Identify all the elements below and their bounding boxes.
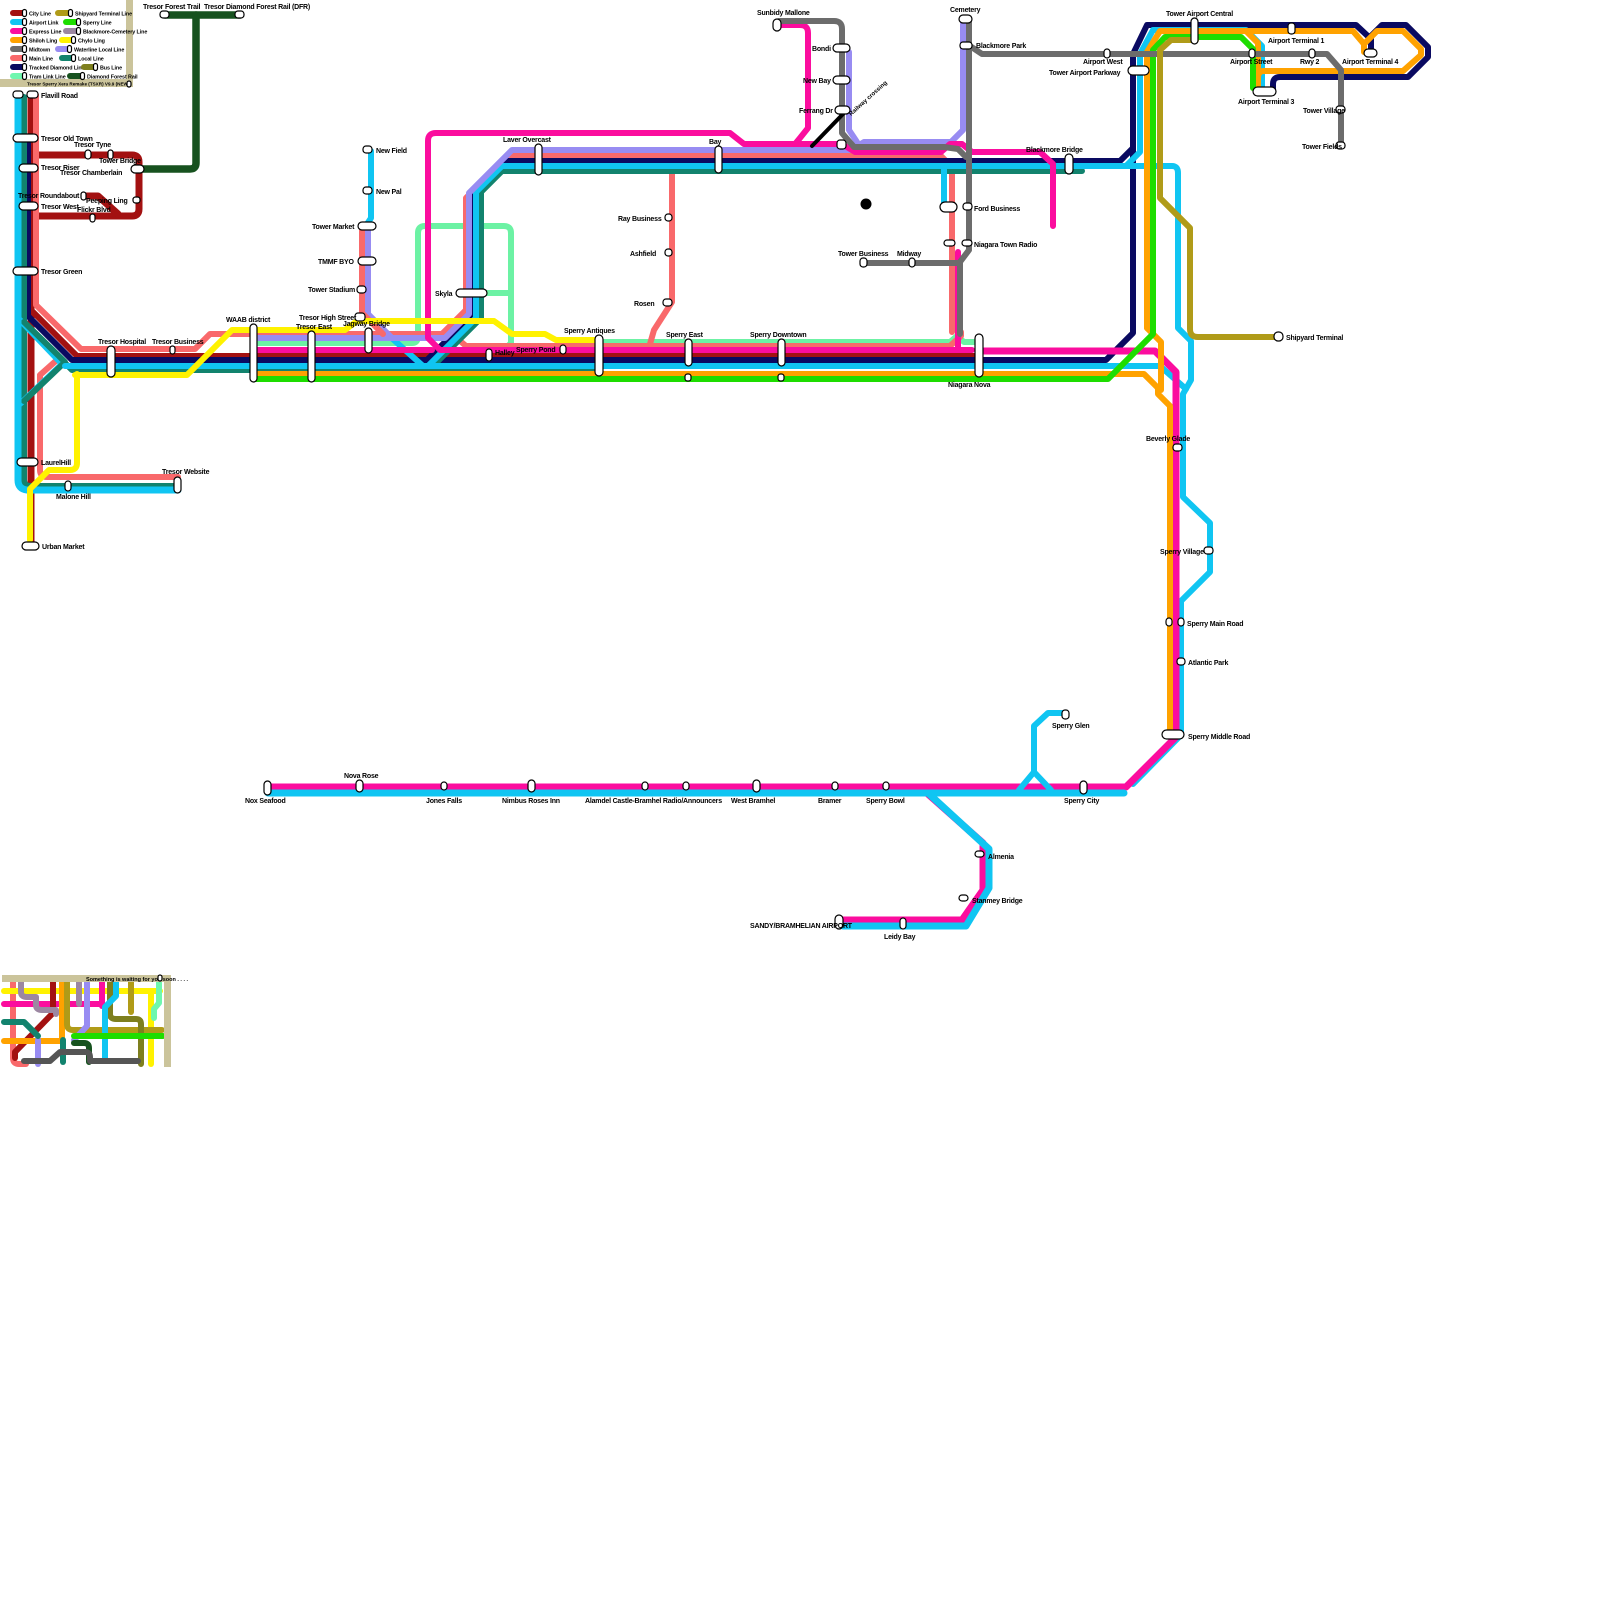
svg-text:New Bay: New Bay bbox=[803, 78, 831, 85]
svg-text:Sperry Line: Sperry Line bbox=[83, 21, 112, 27]
svg-text:Sunbidy Mallone: Sunbidy Mallone bbox=[757, 10, 810, 17]
svg-text:Bay: Bay bbox=[709, 139, 722, 146]
svg-text:Jagway Bridge: Jagway Bridge bbox=[343, 321, 390, 328]
svg-text:Airport Terminal 4: Airport Terminal 4 bbox=[1342, 59, 1398, 66]
svg-text:Tower Bridge: Tower Bridge bbox=[99, 158, 141, 165]
svg-text:LaurelHill: LaurelHill bbox=[41, 460, 71, 467]
svg-text:Tresor West: Tresor West bbox=[41, 204, 80, 211]
svg-text:Sperry Main Road: Sperry Main Road bbox=[1187, 621, 1243, 628]
svg-text:Rwy 2: Rwy 2 bbox=[1300, 59, 1320, 66]
svg-text:Flavill Road: Flavill Road bbox=[41, 93, 78, 100]
svg-text:Laver Overcast: Laver Overcast bbox=[503, 137, 552, 144]
svg-text:Airport West: Airport West bbox=[1083, 59, 1123, 66]
svg-text:Nova Rose: Nova Rose bbox=[344, 773, 379, 780]
svg-text:Niagara Town Radio: Niagara Town Radio bbox=[974, 242, 1037, 249]
svg-text:Tower Airport Central: Tower Airport Central bbox=[1166, 11, 1233, 18]
svg-text:Sperry Middle Road: Sperry Middle Road bbox=[1188, 734, 1250, 741]
svg-text:WAAB district: WAAB district bbox=[226, 317, 271, 324]
svg-text:Rosen: Rosen bbox=[634, 301, 654, 308]
svg-text:Blackmore Bridge: Blackmore Bridge bbox=[1026, 147, 1083, 154]
svg-text:Shipyard Terminal: Shipyard Terminal bbox=[1286, 335, 1343, 342]
svg-text:Tresor High Street: Tresor High Street bbox=[299, 315, 357, 322]
svg-text:Leidy Bay: Leidy Bay bbox=[884, 934, 916, 941]
svg-text:Diamond Forest Rail: Diamond Forest Rail bbox=[87, 75, 138, 81]
svg-text:Tram Link Line: Tram Link Line bbox=[29, 75, 66, 81]
svg-text:Blackmore-Cemetery Line: Blackmore-Cemetery Line bbox=[83, 30, 147, 36]
svg-text:Alamdel Castle-Bramhel Radio/A: Alamdel Castle-Bramhel Radio/Announcers bbox=[585, 798, 722, 805]
svg-text:Tower Business: Tower Business bbox=[838, 251, 889, 258]
svg-text:Beverly Glade: Beverly Glade bbox=[1146, 436, 1190, 443]
svg-text:Airport Link: Airport Link bbox=[29, 21, 58, 27]
svg-text:Ford Business: Ford Business bbox=[974, 206, 1020, 213]
svg-text:Halley: Halley bbox=[495, 350, 515, 357]
svg-text:Something is waiting for you s: Something is waiting for you soon . . . … bbox=[86, 977, 189, 983]
svg-text:Airport Terminal 1: Airport Terminal 1 bbox=[1268, 38, 1324, 45]
svg-text:Tower Market: Tower Market bbox=[312, 224, 355, 231]
svg-text:Cemetery: Cemetery bbox=[950, 7, 981, 14]
svg-text:SANDY/BRAMHELIAN AIRPORT: SANDY/BRAMHELIAN AIRPORT bbox=[750, 923, 853, 930]
svg-text:Tresor Forest Trail: Tresor Forest Trail bbox=[143, 4, 201, 11]
svg-text:Ray Business: Ray Business bbox=[618, 216, 662, 223]
svg-text:Niagara Nova: Niagara Nova bbox=[948, 382, 991, 389]
svg-text:Sperry Antiques: Sperry Antiques bbox=[564, 328, 615, 335]
svg-text:Tresor Diamond Forest Rail (DF: Tresor Diamond Forest Rail (DFR) bbox=[204, 4, 310, 11]
svg-text:Tower Village: Tower Village bbox=[1303, 108, 1345, 115]
svg-text:Chylo Ling: Chylo Ling bbox=[78, 39, 105, 45]
svg-text:Sperry Bowl: Sperry Bowl bbox=[866, 798, 905, 805]
svg-text:Tresor Hospital: Tresor Hospital bbox=[98, 339, 146, 346]
svg-text:Skyla: Skyla bbox=[435, 291, 453, 298]
svg-text:Sperry East: Sperry East bbox=[666, 332, 704, 339]
svg-text:Sperry City: Sperry City bbox=[1064, 798, 1099, 805]
svg-text:Sperry Village: Sperry Village bbox=[1160, 549, 1204, 556]
svg-text:Sperry Pond: Sperry Pond bbox=[516, 347, 555, 354]
svg-text:Bondi: Bondi bbox=[812, 46, 831, 53]
svg-text:Tower Fields: Tower Fields bbox=[1302, 144, 1342, 151]
svg-text:City Line: City Line bbox=[29, 12, 51, 18]
svg-text:Airport Street: Airport Street bbox=[1230, 59, 1273, 66]
svg-text:Tracked Diamond Line: Tracked Diamond Line bbox=[29, 66, 85, 72]
svg-text:Almenia: Almenia bbox=[988, 854, 1014, 861]
svg-text:Waterline Local Line: Waterline Local Line bbox=[74, 48, 124, 54]
svg-text:New Pal: New Pal bbox=[376, 189, 402, 196]
svg-text:Midway: Midway bbox=[897, 251, 921, 258]
svg-text:Ashfield: Ashfield bbox=[630, 251, 656, 258]
svg-text:Tresor Roundabout: Tresor Roundabout bbox=[18, 193, 80, 200]
svg-text:West Bramhel: West Bramhel bbox=[731, 798, 775, 805]
svg-text:Midtown: Midtown bbox=[29, 48, 50, 54]
svg-text:Blackmore Park: Blackmore Park bbox=[976, 43, 1026, 50]
svg-text:Local Line: Local Line bbox=[78, 57, 104, 63]
svg-text:Stanmey Bridge: Stanmey Bridge bbox=[972, 898, 1023, 905]
svg-text:Tresor Tyne: Tresor Tyne bbox=[74, 142, 111, 149]
svg-text:Atlantic Park: Atlantic Park bbox=[1188, 660, 1229, 667]
svg-text:Tresor Chamberlain: Tresor Chamberlain bbox=[60, 170, 122, 177]
svg-text:Tresor Sperry Xera Remake (TSX: Tresor Sperry Xera Remake (TSXR) V9.9 (N… bbox=[27, 82, 130, 87]
svg-text:Tower Airport Parkway: Tower Airport Parkway bbox=[1049, 70, 1121, 77]
svg-text:New Field: New Field bbox=[376, 148, 407, 155]
svg-text:Main Line: Main Line bbox=[29, 57, 53, 63]
svg-text:Tresor Business: Tresor Business bbox=[152, 339, 204, 346]
svg-text:Tresor Green: Tresor Green bbox=[41, 269, 82, 276]
svg-text:Express Line: Express Line bbox=[29, 30, 61, 36]
svg-text:Nox Seafood: Nox Seafood bbox=[245, 798, 286, 805]
svg-text:Tresor Website: Tresor Website bbox=[162, 469, 210, 476]
svg-text:Peeping Ling: Peeping Ling bbox=[86, 198, 128, 205]
svg-text:Airport Terminal 3: Airport Terminal 3 bbox=[1238, 99, 1294, 106]
svg-text:Urban Market: Urban Market bbox=[42, 544, 85, 551]
svg-text:Jones Falls: Jones Falls bbox=[426, 798, 462, 805]
svg-text:Shipyard Terminal Line: Shipyard Terminal Line bbox=[75, 12, 132, 18]
svg-text:Flickr Blvd: Flickr Blvd bbox=[77, 207, 111, 214]
svg-text:Ferrang Dr: Ferrang Dr bbox=[799, 108, 833, 115]
svg-text:Bus Line: Bus Line bbox=[100, 66, 122, 72]
svg-text:Tower Stadium: Tower Stadium bbox=[308, 287, 355, 294]
svg-text:Tresor East: Tresor East bbox=[296, 324, 333, 331]
svg-text:Malone Hill: Malone Hill bbox=[56, 494, 91, 501]
svg-text:Nimbus Roses Inn: Nimbus Roses Inn bbox=[502, 798, 560, 805]
svg-text:Sperry Downtown: Sperry Downtown bbox=[750, 332, 807, 339]
svg-text:Bramer: Bramer bbox=[818, 798, 842, 805]
svg-text:Shiloh Ling: Shiloh Ling bbox=[29, 39, 57, 45]
svg-text:TMMF BYO: TMMF BYO bbox=[318, 259, 354, 266]
svg-text:Sperry Glen: Sperry Glen bbox=[1052, 723, 1089, 730]
